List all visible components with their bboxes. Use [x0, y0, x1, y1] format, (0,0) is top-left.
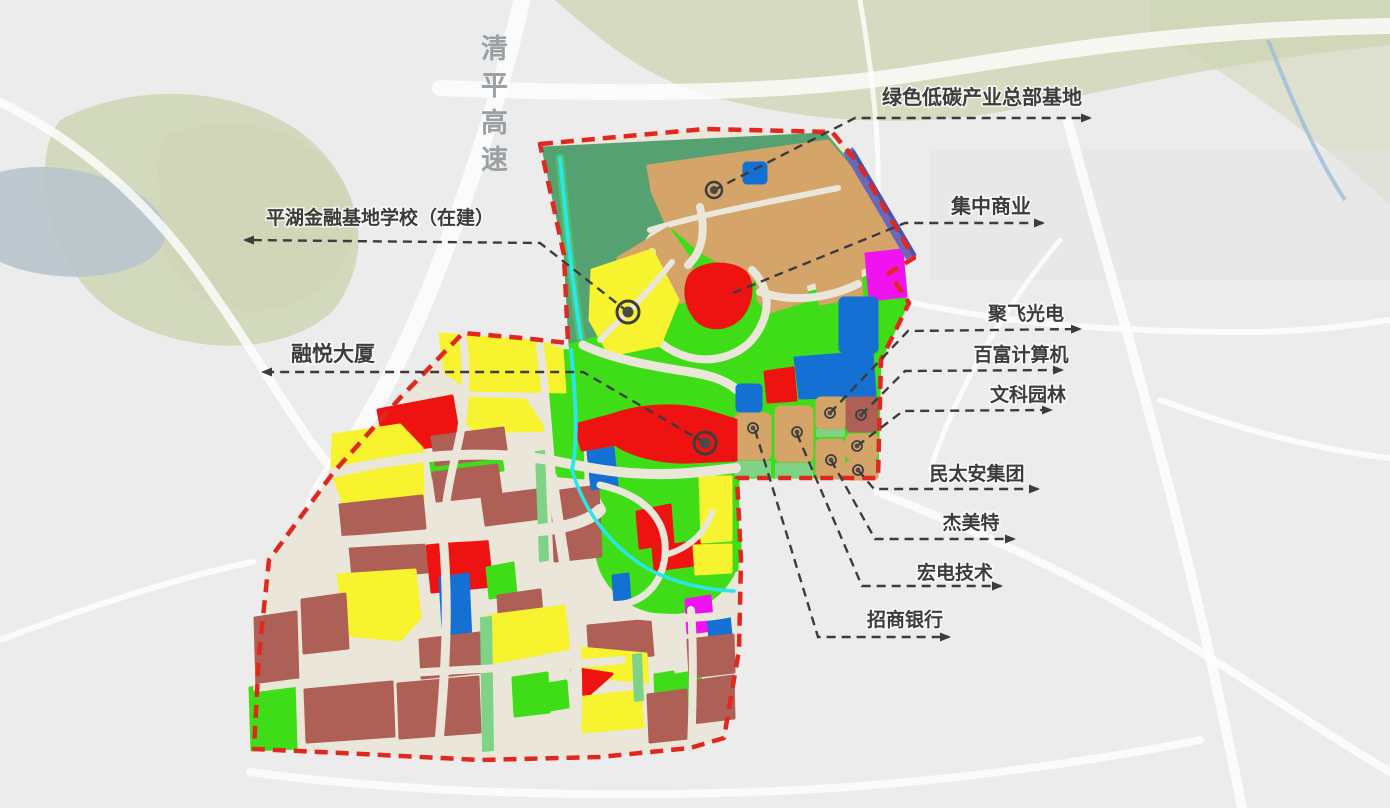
planning-map: 清平高速 绿色低碳产业总部基地 平湖金融基地学校（在建） 集中商业 聚飞光电 百… [0, 0, 1390, 808]
parcel-blue [737, 385, 761, 411]
parcel-residential [305, 682, 394, 742]
label-jufei: 聚飞光电 [987, 302, 1064, 325]
parcel-park [513, 673, 549, 716]
label-jiemeite: 杰美特 [942, 511, 999, 534]
parcel-blue [795, 352, 875, 398]
green-strip [776, 464, 812, 477]
parcel-red [765, 368, 796, 402]
parcel-hongdian [776, 407, 812, 461]
parcel-blue [840, 298, 877, 352]
parcel-blue [613, 574, 630, 603]
parcel-yellow [338, 570, 420, 640]
label-expressway: 清平高速 [477, 34, 508, 182]
green-strip [817, 430, 844, 436]
label-mintaian: 民太安集团 [929, 462, 1024, 485]
parcel-commercial-center [686, 264, 751, 328]
parcel-zhaoshang [736, 414, 770, 459]
green-strip [481, 617, 493, 751]
green-strip [633, 654, 643, 701]
label-rongyue: 融悦大厦 [291, 342, 375, 366]
road [691, 610, 693, 748]
label-baifu: 百富计算机 [973, 343, 1068, 366]
parcel-residential [302, 594, 348, 653]
label-wenke: 文科园林 [990, 383, 1066, 406]
label-school: 平湖金融基地学校（在建） [266, 206, 494, 229]
parcel-residential [648, 690, 688, 742]
label-zhaoshang: 招商银行 [867, 608, 943, 631]
parcel-residential [482, 490, 541, 525]
label-hongdian: 宏电技术 [917, 561, 993, 584]
parcel-yellow [694, 545, 731, 574]
label-commercial: 集中商业 [950, 194, 1031, 218]
parcel-park [548, 681, 568, 710]
parcel-yellow [576, 691, 643, 732]
label-green-base: 绿色低碳产业总部基地 [882, 85, 1082, 109]
leader-wenke [857, 410, 1051, 446]
map-canvas: 清平高速 绿色低碳产业总部基地 平湖金融基地学校（在建） 集中商业 聚飞光电 百… [0, 0, 1390, 808]
